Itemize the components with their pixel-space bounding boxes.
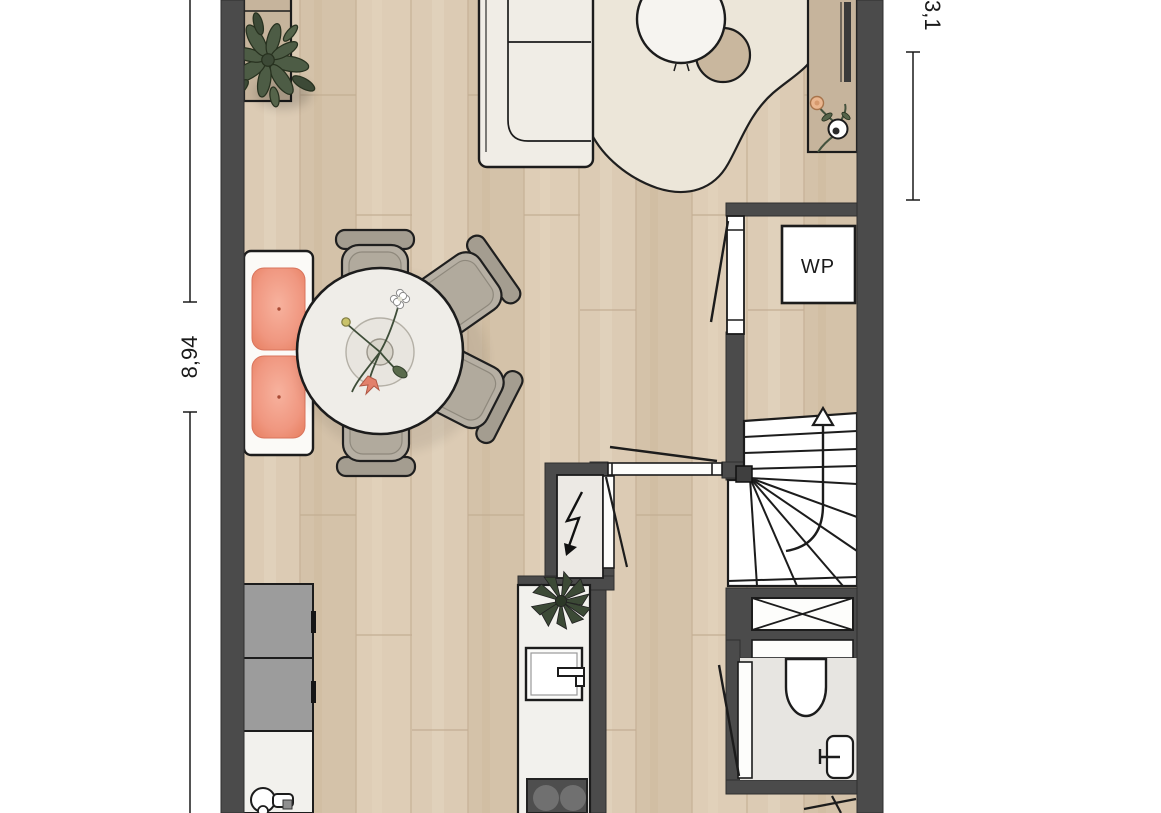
exterior-wall-left [221, 0, 244, 813]
dimension-left-label: 8,94 [177, 336, 202, 379]
shelf-sill [752, 640, 853, 658]
floor-plan: WP [0, 0, 1161, 813]
wall-stairs-left-upper [726, 332, 744, 480]
wc-room [719, 658, 857, 780]
cabinet-handle [311, 611, 316, 633]
heat-pump-unit: WP [782, 226, 855, 303]
kitchen-tall-cabinets [243, 584, 316, 731]
heat-pump-label: WP [801, 256, 835, 278]
exterior-wall-right [857, 0, 883, 813]
dimension-right-label: 3,1 [920, 0, 945, 31]
sofa [479, 0, 593, 167]
dimension-line-left [183, 0, 197, 813]
cabinet-handle [311, 681, 316, 703]
kitchen-counter [243, 731, 313, 813]
toilet [786, 659, 826, 716]
duct-shaft [752, 598, 853, 630]
stair-newel [736, 466, 752, 482]
wall-island-right [590, 590, 606, 813]
cooktop [527, 779, 587, 813]
dimension-line-right [906, 52, 920, 200]
floor-plan-drawing: WP [0, 0, 1161, 813]
island-sink [526, 648, 584, 700]
island-counter [518, 572, 590, 813]
dining-table-round [297, 268, 463, 434]
tv-sideboard [808, 0, 857, 152]
winder-staircase [728, 408, 857, 586]
toilet-door [738, 662, 752, 778]
tv [844, 2, 851, 82]
wall-wp-nook [726, 203, 857, 216]
